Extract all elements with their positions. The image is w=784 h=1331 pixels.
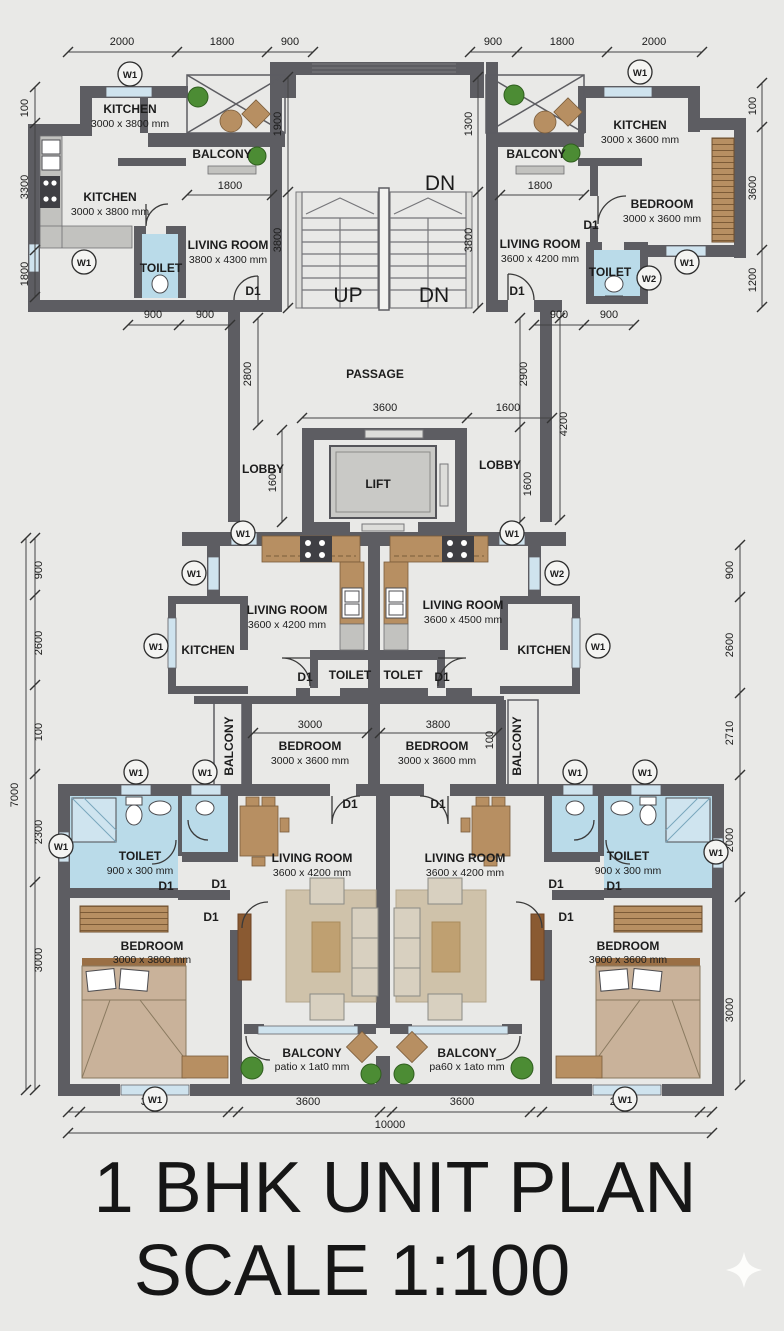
dim-lbot-3000: 3000 — [33, 948, 45, 972]
window-tag: W1 — [633, 760, 657, 784]
label-mr-balcony: BALCONY — [510, 716, 524, 775]
door-tag: D1 — [434, 670, 450, 684]
wardrobe-top-right — [712, 138, 734, 242]
dim-lmid-2600: 2600 — [33, 631, 45, 655]
dim-lobby-right: 1600 — [522, 472, 534, 496]
dim-stair-3800-l: 3800 — [272, 228, 284, 252]
floor-plan-drawing: 2000 1800 900 900 1800 2000 100 3300 180… — [0, 0, 784, 1331]
label-tr-bedroom-size: 3000 x 3600 mm — [623, 213, 701, 225]
door-tag: D1 — [203, 910, 219, 924]
dim-bottom-total: 10000 — [375, 1119, 406, 1131]
label-up: UP — [333, 284, 362, 307]
dim-left-total: 7000 — [9, 783, 21, 807]
label-passage: PASSAGE — [346, 367, 404, 381]
label-ml-balcony: BALCONY — [222, 716, 236, 775]
label-mr-bedroom: BEDROOM — [406, 739, 469, 753]
dim-passage-right: 2900 — [518, 362, 530, 386]
dim-lift-width: 3600 — [373, 402, 397, 414]
dim-900-4: 900 — [600, 309, 618, 321]
window-tag: W1 — [231, 521, 255, 545]
stair-divider — [379, 188, 389, 310]
dim-900-3: 900 — [550, 309, 568, 321]
window-tag-text: W1 — [638, 768, 653, 779]
label-tr-kitchen-size: 3000 x 3600 mm — [601, 134, 679, 146]
label-tr-kitchen: KITCHEN — [613, 118, 666, 132]
window-tag-text: W1 — [54, 842, 69, 853]
window-tag: W1 — [72, 250, 96, 274]
label-bl-toilet: TOILET — [119, 849, 162, 863]
window-tag-text: W1 — [129, 768, 144, 779]
window-tag-text: W1 — [591, 642, 606, 653]
label-br-toilet: TOILET — [607, 849, 650, 863]
door-tag: D1 — [342, 797, 358, 811]
dim-top-3: 900 — [281, 36, 299, 48]
dim-lmid-100: 100 — [33, 723, 45, 741]
dim-right-100: 100 — [747, 97, 759, 115]
label-br-balcony: BALCONY — [437, 1046, 496, 1060]
label-ml-living-size: 3600 x 4200 mm — [248, 619, 326, 631]
dim-rmid-2600: 2600 — [724, 633, 736, 657]
label-lobby-left: LOBBY — [242, 462, 284, 476]
window-tag: W1 — [628, 60, 652, 84]
door-tag: D1 — [548, 877, 564, 891]
dim-rbot-3000: 3000 — [724, 998, 736, 1022]
dim-passage-left: 2800 — [242, 362, 254, 386]
dim-900-1: 900 — [144, 309, 162, 321]
label-ml-toilet: TOILET — [329, 668, 372, 682]
label-tr-balcony: BALCONY — [506, 147, 565, 161]
dim-top-1: 2000 — [110, 36, 134, 48]
label-bl-balcony: BALCONY — [282, 1046, 341, 1060]
window-tag-text: W1 — [633, 68, 648, 79]
label-bl-living: LIVING ROOM — [272, 851, 353, 865]
window-tag: W1 — [124, 760, 148, 784]
dim-passage-outer: 4200 — [558, 412, 570, 436]
door-tag: D1 — [509, 284, 525, 298]
kitchen-mid-left — [262, 536, 364, 650]
dim-lmid-900: 900 — [33, 561, 45, 579]
window-tag-text: W2 — [550, 569, 564, 580]
window-tag-text: W1 — [148, 1095, 163, 1106]
door-tag: D1 — [430, 797, 446, 811]
dim-bedroom-right: 3800 — [426, 719, 450, 731]
sparkle-icon — [726, 1252, 762, 1288]
label-mr-toilet: TOLET — [383, 668, 423, 682]
window-tag: W1 — [675, 250, 699, 274]
dim-right-1200: 1200 — [747, 268, 759, 292]
plan-scale: SCALE 1:100 — [134, 1231, 570, 1311]
label-bl-balcony-size: patio x 1at0 mm — [275, 1061, 350, 1073]
floor-plan-page: { "title": {"line1": "1 BHK UNIT PLAN", … — [0, 0, 784, 1331]
dim-left-3300: 3300 — [19, 175, 31, 199]
label-br-living-size: 3600 x 4200 mm — [426, 867, 504, 879]
window-tag: W1 — [182, 561, 206, 585]
label-bl-bedroom: BEDROOM — [121, 939, 184, 953]
dim-900-2: 900 — [196, 309, 214, 321]
dim-lift-side: 1600 — [496, 402, 520, 414]
window-tag-text: W1 — [187, 569, 202, 580]
door-tag: D1 — [245, 284, 261, 298]
label-br-bedroom-size: 3000 x 3600 mm — [589, 954, 667, 966]
kitchen-mid-right — [384, 536, 488, 650]
window-tag: W1 — [118, 62, 142, 86]
label-ml-bedroom: BEDROOM — [279, 739, 342, 753]
door-tag: D1 — [158, 879, 174, 893]
dim-top-5: 1800 — [550, 36, 574, 48]
label-tr-bedroom: BEDROOM — [631, 197, 694, 211]
window-tag-text: W1 — [236, 529, 251, 540]
label-ml-bedroom-size: 3000 x 3600 mm — [271, 755, 349, 767]
label-tl-kitchen-b-size: 3000 x 3800 mm — [71, 206, 149, 218]
label-bl-bedroom-size: 3000 x 3800 mm — [113, 954, 191, 966]
window-tag: W1 — [49, 834, 73, 858]
label-mr-living-size: 3600 x 4500 mm — [424, 614, 502, 626]
window-tag-text: W1 — [680, 258, 695, 269]
label-tl-living-size: 3800 x 4300 mm — [189, 254, 267, 266]
door-tag: D1 — [558, 910, 574, 924]
dim-left-100: 100 — [19, 99, 31, 117]
window-tag: W1 — [193, 760, 217, 784]
label-br-toilet-size: 900 x 300 mm — [595, 865, 662, 877]
label-tr-living: LIVING ROOM — [500, 237, 581, 251]
label-dn-top: DN — [425, 172, 455, 195]
dim-stair-3800-r: 3800 — [463, 228, 475, 252]
label-tr-living-size: 3600 x 4200 mm — [501, 253, 579, 265]
window-tag-text: W1 — [123, 70, 138, 81]
window-tag: W2 — [545, 561, 569, 585]
label-bl-toilet-size: 900 x 300 mm — [107, 865, 174, 877]
label-br-bedroom: BEDROOM — [597, 939, 660, 953]
dim-bedroom-small: 100 — [484, 731, 496, 749]
window-tag-text: W1 — [149, 642, 164, 653]
dim-balcony-left: 1800 — [218, 180, 242, 192]
dim-balcony-right: 1800 — [528, 180, 552, 192]
window-tag-text: W1 — [505, 529, 520, 540]
window-tag-text: W1 — [709, 848, 724, 859]
label-ml-living: LIVING ROOM — [247, 603, 328, 617]
window-tag-text: W2 — [642, 274, 656, 285]
label-tl-living: LIVING ROOM — [188, 238, 269, 252]
dim-bottom-3: 3600 — [450, 1096, 474, 1108]
door-tag: D1 — [297, 670, 313, 684]
dim-stair-1300: 1300 — [463, 112, 475, 136]
door-tag: D1 — [211, 877, 227, 891]
dim-stair-1900: 1900 — [272, 112, 284, 136]
window-tag: W1 — [500, 521, 524, 545]
label-mr-bedroom-size: 3000 x 3600 mm — [398, 755, 476, 767]
label-ml-kitchen: KITCHEN — [181, 643, 234, 657]
dim-right-3600: 3600 — [747, 176, 759, 200]
label-lift: LIFT — [365, 477, 391, 491]
dim-bottom-2: 3600 — [296, 1096, 320, 1108]
door-tag: D1 — [606, 879, 622, 893]
dim-rmid-900: 900 — [724, 561, 736, 579]
dim-bedroom-left: 3000 — [298, 719, 322, 731]
window-tag: W1 — [144, 634, 168, 658]
dim-top-4: 900 — [484, 36, 502, 48]
label-tr-toilet: TOILET — [589, 265, 632, 279]
window-tag-text: W1 — [77, 258, 92, 269]
door-tag: D1 — [583, 218, 599, 232]
window-tag: W1 — [613, 1087, 637, 1111]
label-tl-kitchen-a-size: 3000 x 3800 mm — [91, 118, 169, 130]
dim-rmid-2710: 2710 — [724, 721, 736, 745]
window-tag-text: W1 — [618, 1095, 633, 1106]
label-br-balcony-size: pa60 x 1ato mm — [429, 1061, 505, 1073]
label-tl-toilet: TOILET — [140, 261, 183, 275]
window-tag: W1 — [143, 1087, 167, 1111]
label-dn-bottom: DN — [419, 284, 449, 307]
window-tag: W2 — [637, 266, 661, 290]
window-tag: W1 — [704, 840, 728, 864]
dim-top-6: 2000 — [642, 36, 666, 48]
label-lobby-right: LOBBY — [479, 458, 521, 472]
window-tag: W1 — [563, 760, 587, 784]
dim-top-2: 1800 — [210, 36, 234, 48]
dim-lbot-2300: 2300 — [33, 820, 45, 844]
window-tag: W1 — [586, 634, 610, 658]
window-tag-text: W1 — [198, 768, 213, 779]
plan-title: 1 BHK UNIT PLAN — [94, 1148, 697, 1228]
label-br-living: LIVING ROOM — [425, 851, 506, 865]
window-tag-text: W1 — [568, 768, 583, 779]
label-mr-living: LIVING ROOM — [423, 598, 504, 612]
label-tl-balcony: BALCONY — [192, 147, 251, 161]
dim-left-1800: 1800 — [19, 262, 31, 286]
label-tl-kitchen-b: KITCHEN — [83, 190, 136, 204]
label-tl-kitchen-a: KITCHEN — [103, 102, 156, 116]
label-mr-kitchen: KITCHEN — [517, 643, 570, 657]
label-bl-living-size: 3600 x 4200 mm — [273, 867, 351, 879]
